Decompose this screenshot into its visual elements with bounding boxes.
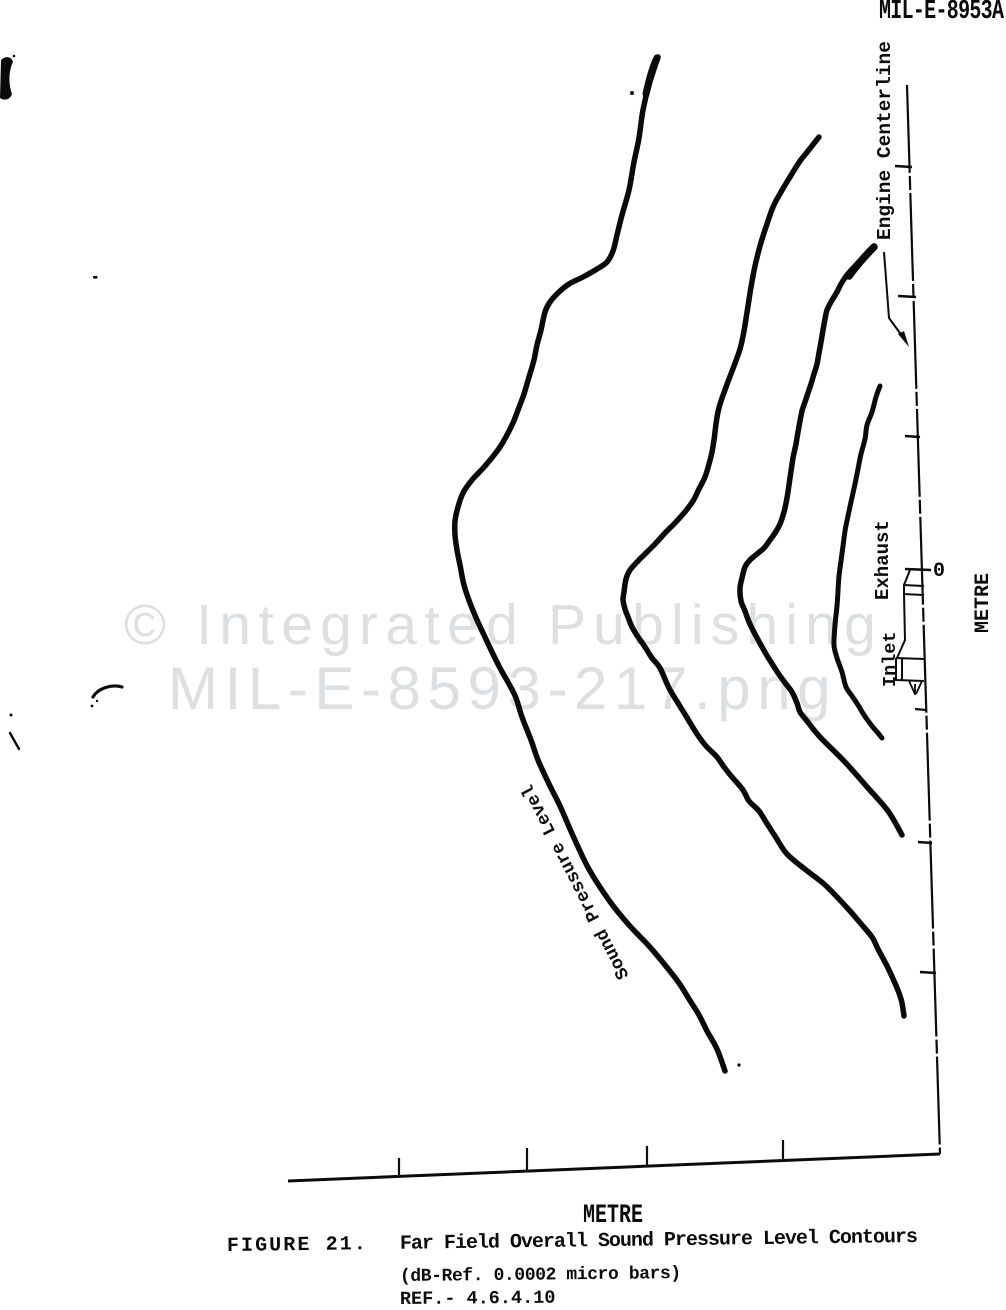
svg-text:Exhaust: Exhaust (872, 520, 894, 600)
svg-text:MIL-E-8593-217.png: MIL-E-8593-217.png (168, 655, 837, 722)
svg-text:REF.- 4.6.4.10: REF.- 4.6.4.10 (400, 1288, 556, 1305)
svg-text:METRE: METRE (583, 1200, 643, 1231)
svg-text:© Integrated Publishing: © Integrated Publishing (124, 593, 883, 657)
svg-text:0: 0 (933, 560, 945, 583)
svg-text:MIL-E-8953A: MIL-E-8953A (879, 0, 1005, 27)
svg-text:(dB-Ref. 0.0002 micro bars): (dB-Ref. 0.0002 micro bars) (400, 1264, 681, 1287)
svg-text:Inlet: Inlet (880, 631, 901, 687)
svg-text:METRE: METRE (972, 573, 995, 633)
svg-text:Engine Centerline: Engine Centerline (874, 41, 896, 240)
